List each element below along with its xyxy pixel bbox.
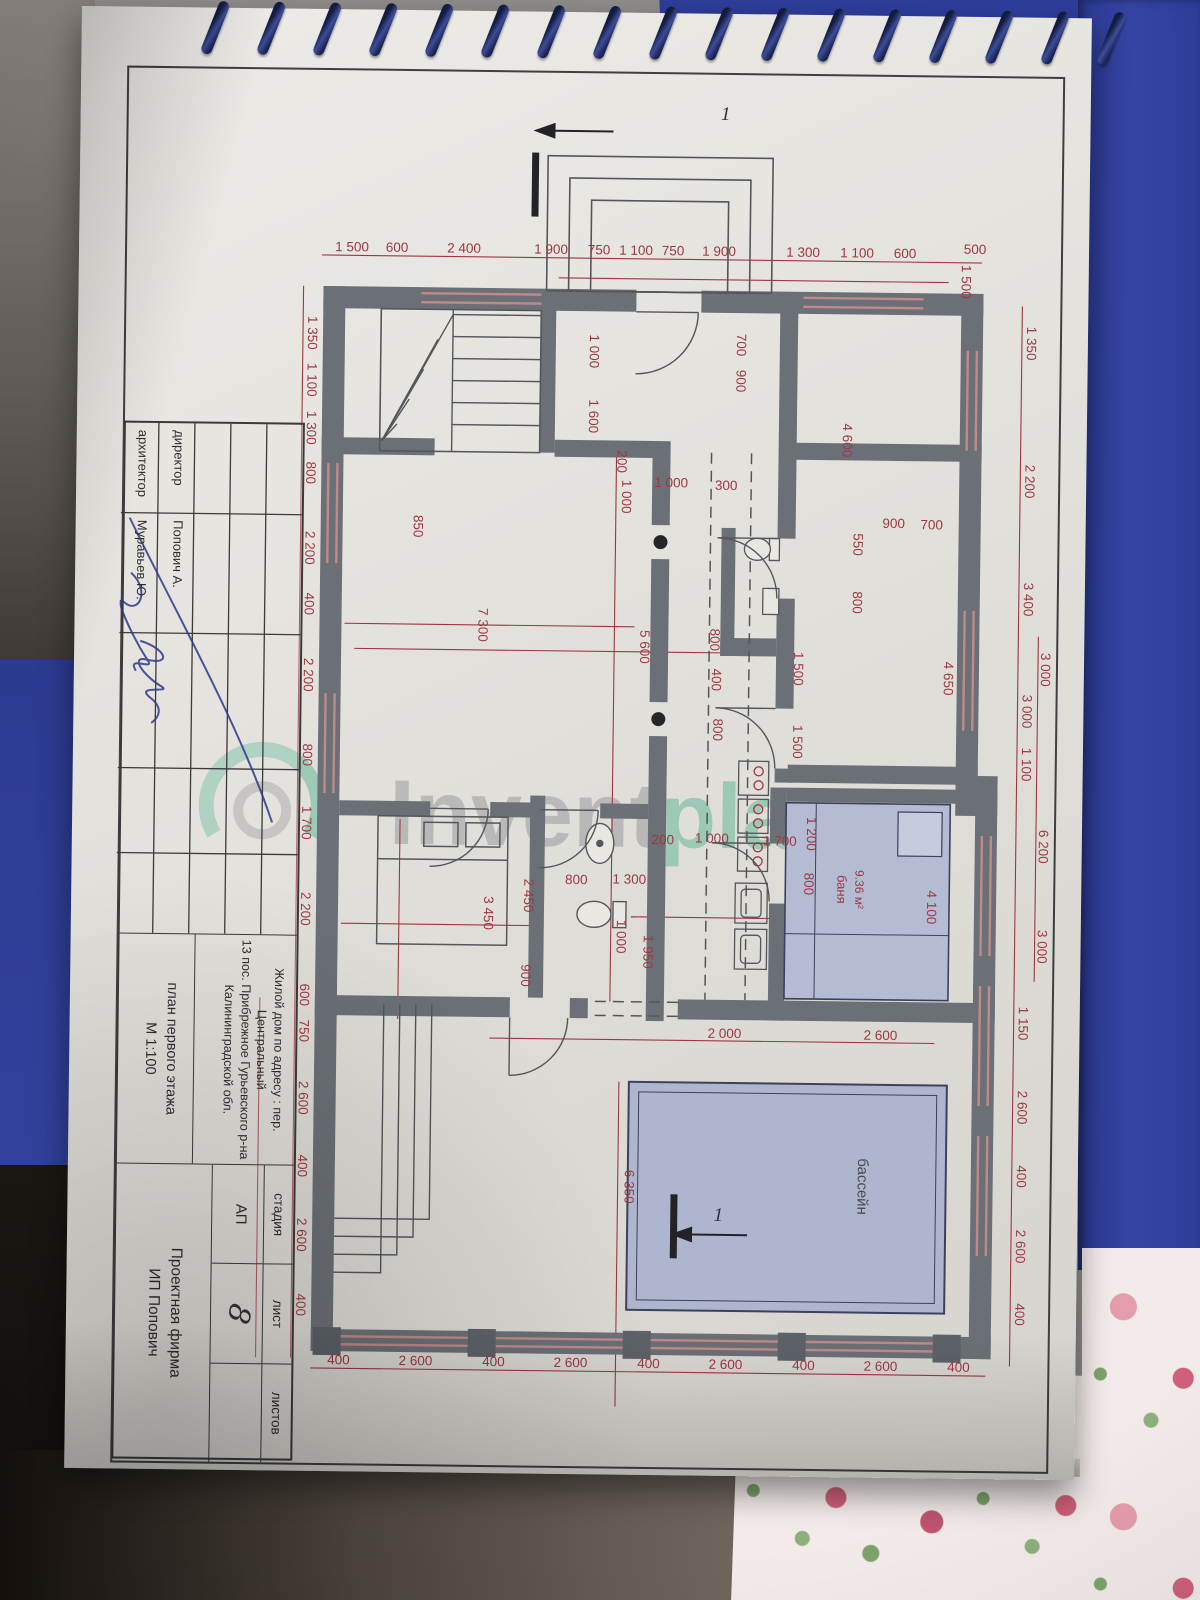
spiral-coil bbox=[1096, 11, 1127, 67]
dimension-label: 400 bbox=[947, 1360, 970, 1375]
firm-name: Проектная фирма bbox=[162, 1164, 188, 1461]
dimension-label: 6 350 bbox=[621, 1170, 636, 1204]
dimension-label: 4 100 bbox=[924, 890, 939, 924]
dimension-label: 2 600 bbox=[398, 1353, 432, 1368]
sheets-value bbox=[209, 1363, 261, 1462]
dimension-label: 1 900 bbox=[702, 244, 736, 259]
title-block: директор архитектор Попович А. Муравьев … bbox=[111, 421, 305, 1461]
spiral-coil bbox=[984, 9, 1015, 65]
dimension-label: 600 bbox=[894, 246, 917, 261]
dimension-label: 400 bbox=[1014, 1165, 1029, 1188]
role-label: директор bbox=[171, 430, 187, 486]
dimension-label: 800 bbox=[707, 628, 722, 651]
dimension-label: 900 bbox=[518, 964, 533, 987]
dimension-label: 3 400 bbox=[1021, 583, 1036, 617]
sheet-scale: М 1:100 bbox=[138, 934, 162, 1163]
dimension-label: 2 200 bbox=[301, 658, 316, 692]
dimension-label: 1 300 bbox=[786, 245, 820, 260]
role-name: Попович А. bbox=[170, 520, 186, 588]
dimension-label: 1 000 bbox=[613, 920, 628, 954]
dimension-label: 3 000 bbox=[1034, 930, 1049, 964]
dimension-label: 2 600 bbox=[294, 1218, 309, 1252]
dimension-label: 400 bbox=[295, 1154, 310, 1177]
dimension-label: 1 100 bbox=[1019, 748, 1034, 782]
dimension-label: 400 bbox=[293, 1293, 308, 1316]
spiral-coil bbox=[872, 8, 903, 64]
dimension-label: 400 bbox=[709, 668, 724, 691]
dimension-label: 2 600 bbox=[295, 1081, 310, 1115]
staircase bbox=[380, 309, 542, 453]
dimension-label: 400 bbox=[482, 1354, 505, 1369]
drawing-sheet: Inventplace bbox=[64, 6, 1092, 1480]
dimension-label: 7 300 bbox=[475, 608, 490, 642]
dimension-label: 900 bbox=[733, 370, 748, 393]
spiral-coil bbox=[1040, 10, 1071, 66]
dimension-label: 2 600 bbox=[863, 1359, 897, 1374]
spiral-coil bbox=[704, 6, 735, 62]
dimension-label: 500 bbox=[964, 242, 987, 257]
dimension-label: 3 000 bbox=[1019, 695, 1034, 729]
dimension-label: 4 600 bbox=[840, 423, 855, 457]
dimension-label: 400 bbox=[302, 592, 317, 615]
stage-value: АП bbox=[212, 1165, 264, 1265]
dimension-label: 1 950 bbox=[640, 935, 655, 969]
dimension-label: 400 bbox=[327, 1352, 350, 1367]
project-address-cell: Жилой дом по адресу : пер. Центральный 1… bbox=[117, 933, 297, 1165]
spiral-coil bbox=[816, 7, 847, 63]
dimension-label: 800 bbox=[850, 591, 865, 614]
dimension-label: 1 100 bbox=[304, 363, 319, 397]
dimension-label: 900 bbox=[882, 516, 905, 531]
spiral-coil bbox=[312, 1, 343, 57]
dimension-label: 700 bbox=[734, 334, 749, 357]
dimension-label: 1 000 bbox=[654, 475, 688, 490]
dimension-label: 1 350 bbox=[305, 316, 320, 350]
role-name: Муравьев Ю. bbox=[134, 520, 150, 600]
dimension-label: 1 300 bbox=[304, 411, 319, 445]
dimension-label: 2 200 bbox=[1022, 465, 1037, 499]
spiral-coil bbox=[200, 0, 231, 56]
room-label: баня bbox=[834, 875, 849, 904]
dimension-label: 2 600 bbox=[553, 1355, 587, 1370]
sheet-number: 8 bbox=[226, 1302, 250, 1326]
dimension-label: 2 400 bbox=[447, 240, 481, 255]
stage-sheet-cell: стадия лист листов АП 8 Проектная фирма … bbox=[113, 1163, 294, 1463]
dimension-label: 400 bbox=[1012, 1303, 1027, 1326]
room-label: бассейн bbox=[853, 1158, 871, 1215]
dimension-label: 750 bbox=[588, 242, 611, 257]
section-labels: 11 bbox=[707, 104, 736, 1226]
spiral-coil bbox=[648, 5, 679, 61]
role-label: архитектор bbox=[135, 430, 151, 497]
spiral-coil bbox=[760, 6, 791, 62]
spiral-coil bbox=[256, 0, 287, 56]
dimension-label: 2 450 bbox=[521, 879, 536, 913]
floral-cloth-right bbox=[1082, 1248, 1200, 1600]
address-line: Жилой дом по адресу : пер. Центральный bbox=[252, 935, 288, 1164]
dimension-label: 800 bbox=[303, 461, 318, 484]
dimension-label: 2 600 bbox=[863, 1028, 897, 1043]
dimension-label: 400 bbox=[637, 1356, 660, 1371]
dimension-label: 800 bbox=[710, 718, 725, 741]
dimension-label: 1 350 bbox=[1024, 327, 1039, 361]
dimension-label: 1 000 bbox=[695, 831, 729, 846]
stage-header: стадия bbox=[264, 1165, 294, 1265]
address-line: 13 пос. Прибрежное Гурьевского р-на bbox=[235, 935, 254, 1164]
dimension-label: 200 bbox=[614, 450, 629, 473]
dimension-label: 4 650 bbox=[941, 662, 956, 696]
dimension-label: 1 500 bbox=[958, 265, 973, 299]
dimension-label: 850 bbox=[411, 515, 426, 538]
dimension-label: 1 700 bbox=[763, 833, 797, 848]
dimension-label: 800 bbox=[801, 873, 816, 896]
section-number: 1 bbox=[713, 1205, 723, 1226]
photo-scene: Inventplace bbox=[0, 0, 1200, 1600]
dimension-label: 1 200 bbox=[804, 817, 819, 851]
dimension-label: 400 bbox=[792, 1358, 815, 1373]
spiral-coil bbox=[536, 4, 567, 60]
dimension-label: 2 200 bbox=[298, 892, 313, 926]
dimension-label: 600 bbox=[386, 240, 409, 255]
dimension-label: 600 bbox=[297, 983, 312, 1006]
sheets-header: листов bbox=[261, 1364, 291, 1463]
firm-name: ИП Попович bbox=[140, 1164, 166, 1461]
dimension-label: 2 200 bbox=[302, 531, 317, 565]
dimension-label: 6 200 bbox=[1036, 830, 1051, 864]
dimension-label: 1 000 bbox=[587, 334, 602, 368]
blue-folder-right bbox=[1078, 0, 1200, 1270]
room-label: 9.36 м² bbox=[852, 870, 866, 909]
dimension-label: 800 bbox=[565, 872, 588, 887]
dimension-label: 700 bbox=[920, 517, 943, 532]
dimension-label: 1 300 bbox=[612, 872, 646, 887]
dimension-label: 1 100 bbox=[840, 245, 874, 260]
spiral-coil bbox=[368, 2, 399, 58]
sheet-title: план первого этажа bbox=[159, 934, 183, 1163]
dimension-label: 750 bbox=[296, 1019, 311, 1042]
dimension-label: 300 bbox=[715, 478, 738, 493]
dimension-label: 550 bbox=[850, 533, 865, 556]
dimension-label: 2 000 bbox=[708, 1026, 742, 1041]
title-block-grid bbox=[116, 423, 303, 935]
terrace-steps bbox=[334, 1003, 432, 1273]
dimension-label: 1 700 bbox=[299, 806, 314, 840]
dimension-label: 1 600 bbox=[586, 399, 601, 433]
dimension-label: 3 000 bbox=[1038, 653, 1053, 687]
dimension-label: 2 600 bbox=[1014, 1091, 1029, 1125]
dimension-label: 2 600 bbox=[708, 1357, 742, 1372]
dimension-label: 1 000 bbox=[619, 480, 634, 514]
spiral-coil bbox=[424, 2, 455, 58]
dimension-label: 1 900 bbox=[534, 242, 568, 257]
dimension-label: 3 450 bbox=[481, 896, 496, 930]
dimension-label: 1 500 bbox=[791, 652, 806, 686]
spiral-coil bbox=[592, 4, 623, 60]
dimension-label: 1 500 bbox=[790, 725, 805, 759]
dimension-label: 5 600 bbox=[637, 630, 652, 664]
dimension-label: 1 500 bbox=[335, 239, 369, 254]
dimension-label: 750 bbox=[662, 243, 685, 258]
spiral-binding bbox=[209, 0, 1170, 71]
sheet-header: лист bbox=[262, 1265, 292, 1365]
dimension-label: 1 150 bbox=[1015, 1007, 1030, 1041]
dimension-label: 800 bbox=[300, 743, 315, 766]
spiral-coil bbox=[480, 3, 511, 59]
dimension-label: 200 bbox=[652, 832, 675, 847]
spiral-coil bbox=[928, 8, 959, 64]
dimension-label: 2 600 bbox=[1013, 1230, 1028, 1264]
section-number: 1 bbox=[721, 104, 731, 125]
dimension-label: 1 100 bbox=[619, 243, 653, 258]
floor-plan-rotated: Inventplace bbox=[109, 66, 1061, 1472]
porch-steps bbox=[547, 156, 774, 294]
